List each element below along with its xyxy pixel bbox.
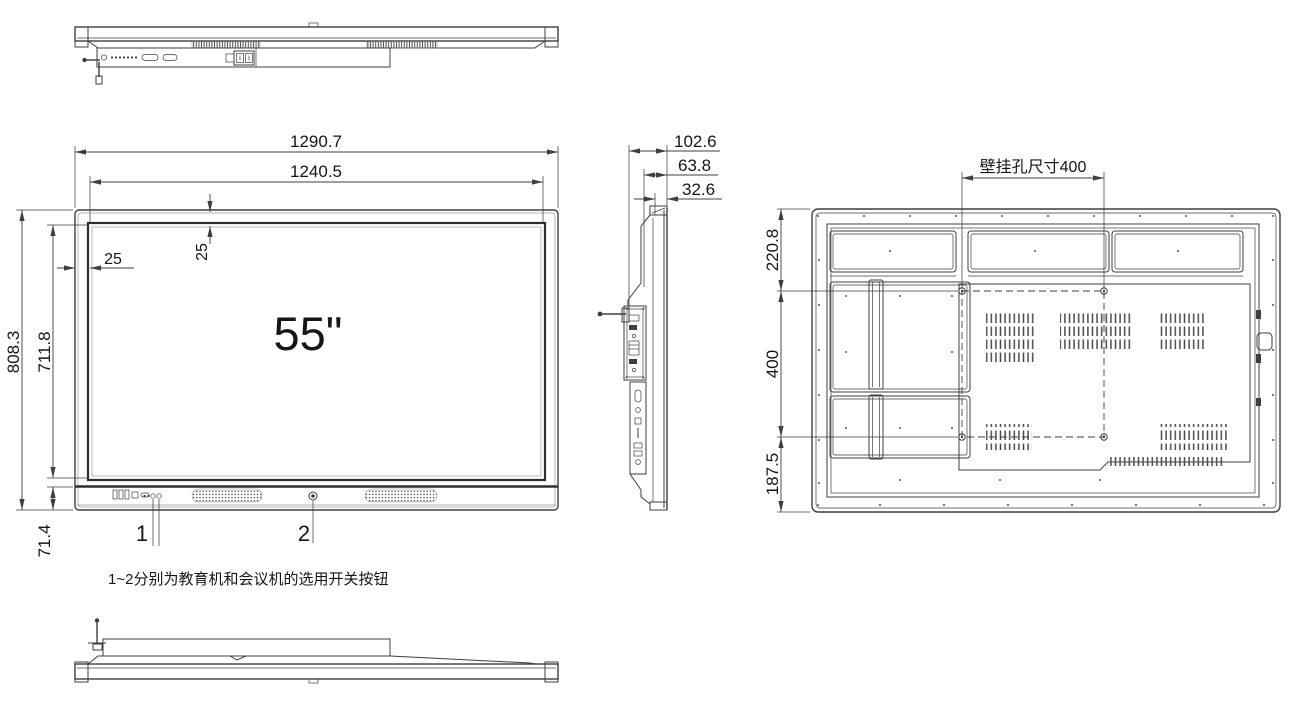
option-button-1b — [157, 494, 161, 498]
technical-drawing: 55" 1 2 — [0, 0, 1311, 708]
power-inlet-icon — [234, 51, 254, 65]
top-view — [75, 23, 558, 84]
footnote: 1~2分别为教育机和会议机的选用开关按钮 — [108, 571, 388, 588]
vent-group-e — [1160, 424, 1228, 450]
dim-bottom-offset-label: 187.5 — [763, 453, 782, 496]
screen-size-label: 55" — [274, 307, 343, 360]
dim-bezel-left: 25 — [57, 251, 134, 268]
dim-total-depth-label: 102.6 — [674, 132, 717, 151]
serial-port-icon — [163, 55, 177, 61]
dim-screen-height: 711.8 — [35, 225, 88, 478]
front-connector-cluster — [113, 490, 161, 499]
dim-outer-width-label: 1290.7 — [290, 132, 342, 151]
side-view: 102.6 63.8 32.6 — [598, 132, 722, 510]
dim-screen-width-label: 1240.5 — [290, 162, 342, 181]
rear-handle-upper — [869, 280, 883, 389]
rear-view: 壁挂孔尺寸400 220.8 400 187.5 — [763, 157, 1280, 512]
rear-cover-plate — [959, 284, 1250, 470]
dim-bottom-section-label: 71.4 — [35, 524, 54, 557]
top-port-icons — [101, 51, 254, 65]
side-ops-module — [624, 306, 646, 380]
dim-bezel-top-label: 25 — [194, 243, 211, 261]
option-button-1a — [151, 494, 155, 498]
vent-group-b — [1060, 313, 1132, 352]
rear-top-panels — [830, 231, 1243, 276]
top-vent-strip-left — [192, 42, 260, 49]
dim-screen-height-label: 711.8 — [35, 331, 54, 372]
rear-handle-lower — [869, 395, 883, 459]
dim-panel-depth-label: 32.6 — [682, 180, 715, 199]
bottom-view — [75, 618, 558, 683]
callout-2-label: 2 — [298, 521, 310, 546]
speaker-grille-left — [192, 489, 262, 502]
dim-bottom-section: 71.4 — [35, 487, 73, 558]
callout-1: 1 — [136, 499, 159, 546]
top-antenna — [82, 58, 102, 84]
dim-bezel-top: 25 — [194, 194, 211, 261]
callout-2: 2 — [298, 501, 313, 546]
speaker-grille-right — [365, 489, 437, 502]
drawing-sheet: 55" 1 2 — [0, 0, 1311, 708]
dim-mount-spacing-label: 400 — [763, 350, 782, 378]
callout-1-label: 1 — [136, 521, 148, 546]
vga-port-icon — [142, 55, 158, 61]
dim-top-offset-label: 220.8 — [763, 229, 782, 272]
switch-icon — [226, 54, 234, 62]
top-vent-strip-right — [367, 42, 437, 49]
dim-body-depth-label: 63.8 — [678, 156, 711, 175]
dim-panel-depth: 32.6 — [634, 180, 722, 215]
bottom-housing — [103, 639, 390, 656]
dim-rear-left: 220.8 400 187.5 — [763, 209, 958, 512]
rear-left-panels — [830, 280, 970, 459]
vent-strip-bottom — [1107, 457, 1225, 467]
front-view: 55" 1 2 — [4, 132, 558, 558]
dim-outer-height-label: 808.3 — [4, 331, 23, 374]
dim-bezel-left-label: 25 — [104, 251, 122, 268]
mount-label: 壁挂孔尺寸400 — [980, 157, 1087, 176]
side-port-strip — [630, 382, 646, 474]
rear-right-edge-details — [1256, 310, 1272, 406]
dim-body-depth: 63.8 — [644, 156, 718, 287]
vent-group-a — [986, 313, 1034, 365]
vent-group-c — [1160, 313, 1206, 352]
